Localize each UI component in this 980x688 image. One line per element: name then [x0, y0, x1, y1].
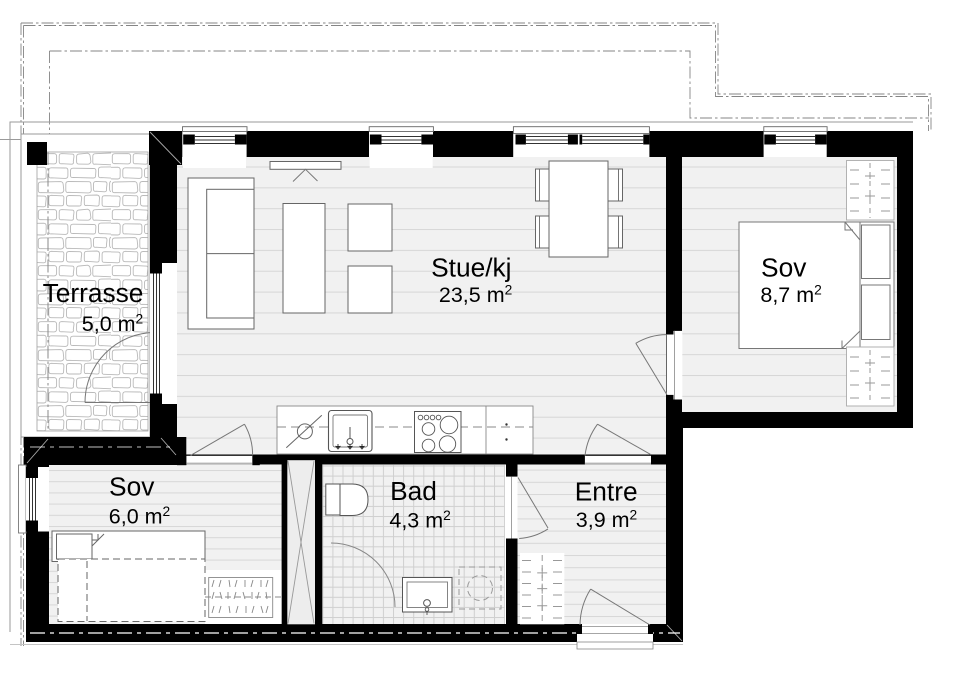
svg-text:Sov: Sov: [761, 253, 807, 283]
svg-text:8,7 m2: 8,7 m2: [760, 283, 821, 308]
svg-text:Stue/kj: Stue/kj: [431, 252, 511, 282]
svg-text:Bad: Bad: [390, 476, 437, 506]
svg-text:4,3 m2: 4,3 m2: [389, 508, 450, 533]
svg-text:Entre: Entre: [575, 477, 638, 507]
svg-text:3,9 m2: 3,9 m2: [576, 507, 637, 532]
svg-text:5,0 m2: 5,0 m2: [82, 312, 143, 337]
svg-text:23,5 m2: 23,5 m2: [439, 283, 512, 308]
svg-text:Terrasse: Terrasse: [43, 278, 144, 308]
svg-text:6,0 m2: 6,0 m2: [109, 504, 170, 529]
svg-text:Sov: Sov: [109, 472, 155, 502]
